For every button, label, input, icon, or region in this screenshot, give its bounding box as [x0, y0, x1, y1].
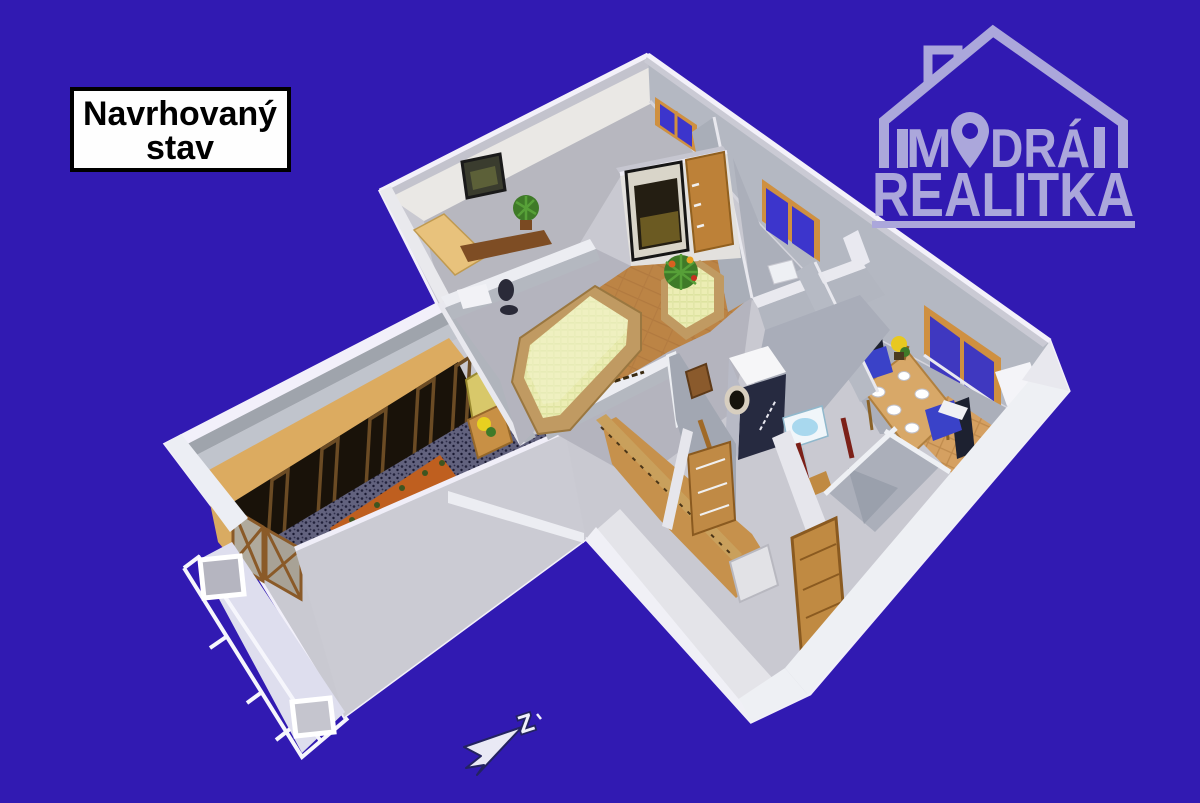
- svg-text:stav: stav: [146, 129, 214, 167]
- svg-text:REALITKA: REALITKA: [872, 161, 1134, 230]
- svg-text:Navrhovaný: Navrhovaný: [83, 95, 277, 133]
